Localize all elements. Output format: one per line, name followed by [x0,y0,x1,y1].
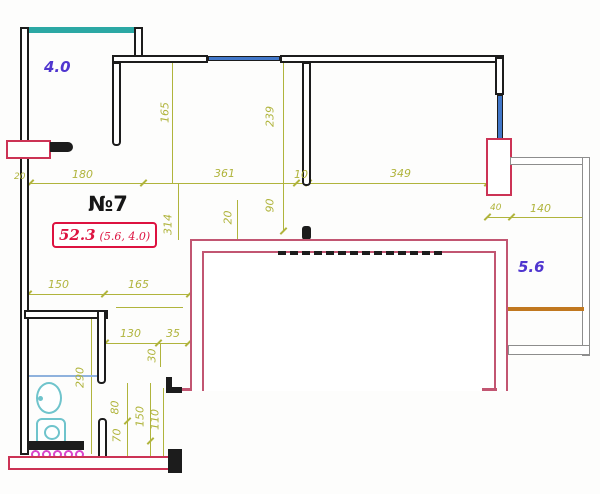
red-pillar [486,138,512,196]
dim-line-v290 [91,318,92,454]
dim-label-165-v: 165 [159,93,172,133]
balcony-right-area-label: 5.6 [518,258,545,276]
dim-label-165-mid: 165 [128,278,149,291]
shower-partition-line [29,375,97,377]
dim-line-v165 [172,62,173,183]
dim-line-mid [28,294,190,295]
door-frame-horizontal [166,387,182,393]
black-stub-left [50,142,73,152]
red-wall-segment-left [6,140,51,159]
dim-label-150-v: 150 [134,397,147,437]
dim-label-10: 10 [294,168,308,181]
entry-black-corner [168,449,182,473]
dim-label-35: 35 [166,327,180,340]
window-right [497,95,503,141]
top-wall-right-segment [280,55,504,63]
dim-tick [280,227,288,235]
dim-label-150-mid: 150 [48,278,69,291]
balcony-top-left-area-label: 4.0 [44,58,71,76]
balcony-right-bottom-wall [508,345,590,355]
unit-number-label: №7 [88,192,128,216]
toilet-bowl-icon [44,425,60,440]
bathroom-right-wall-lower [98,418,107,460]
top-right-corner-wall [495,57,504,95]
dim-line-right-balcony [487,217,587,218]
dim-label-239-v: 239 [264,97,277,137]
window-top [208,56,280,61]
bathroom-top-wall [24,310,108,319]
dashed-partition-line [278,251,442,255]
area-detail-label: (5.6, 4.0) [100,230,151,243]
dim-line-v90 [283,184,284,232]
balcony-right-side-wall [582,157,590,356]
pink-wall-foot-right [482,388,497,391]
dim-label-90-v: 90 [264,186,277,226]
dim-label-20-v: 20 [222,198,235,238]
dim-line-v239 [283,62,284,183]
sink-tap-icon [38,396,43,401]
dim-label-70-v: 70 [111,416,124,456]
dim-line-v314 [178,184,179,240]
dim-line-v30 [160,343,161,367]
dim-label-top-20: 20 [14,172,25,182]
dim-line-top [30,183,488,184]
top-wall-left-segment [112,55,208,63]
entry-threshold-wall [28,441,84,450]
dim-label-140: 140 [530,202,551,215]
balcony-top-teal-wall [24,27,136,33]
dim-label-30-v: 30 [146,336,159,376]
dim-label-349: 349 [390,167,411,180]
dim-label-361: 361 [214,167,235,180]
balcony-right-top-wall [510,157,590,165]
left-exterior-wall [20,27,29,455]
pink-room-inner-wall [202,251,496,391]
dim-label-110-v: 110 [149,400,162,440]
dim-label-130: 130 [120,327,141,340]
floor-plan-canvas: 4.0 5.6 №7 52.3 (5.6, 4.0) 20 180 361 10… [0,0,600,494]
entry-red-wall [8,456,182,470]
area-total-label: 52.3 [59,226,96,244]
area-info-box: 52.3 (5.6, 4.0) [52,222,157,248]
room1-left-wall [112,62,121,146]
dim-label-40: 40 [490,203,501,213]
dim-label-180: 180 [72,168,93,181]
dim-line-v110 [163,388,164,466]
radiator-orange-bar [508,307,584,311]
dim-line-mid2 [116,307,183,308]
bathroom-right-wall-upper [97,310,106,384]
dim-label-290-v: 290 [74,358,87,398]
dim-label-314-v: 314 [162,205,175,245]
vent-stub-wall [302,226,311,240]
